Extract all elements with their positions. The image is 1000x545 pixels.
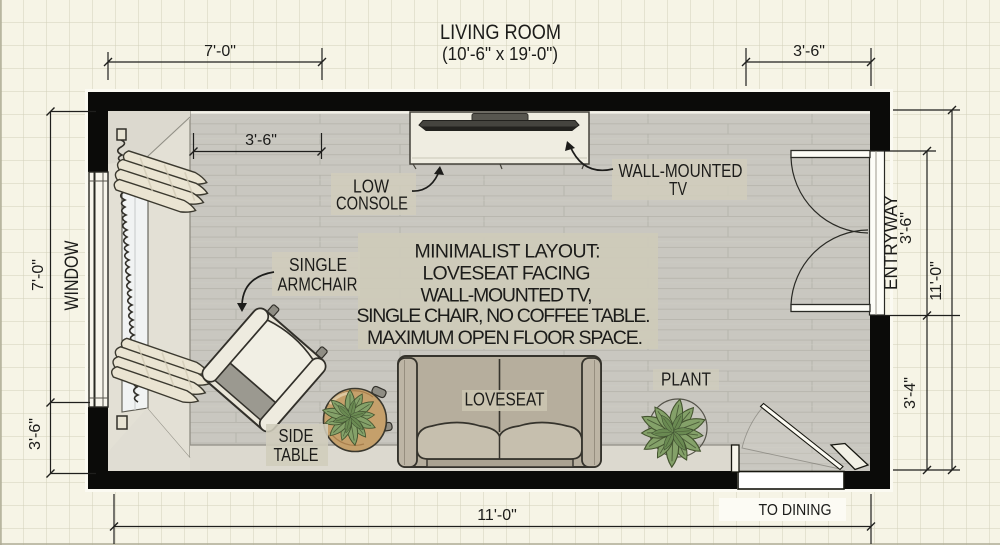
- svg-text:PLANT: PLANT: [661, 369, 711, 390]
- svg-text:TO DINING: TO DINING: [759, 502, 832, 519]
- svg-text:7'-0": 7'-0": [204, 43, 236, 60]
- svg-text:11'-0": 11'-0": [477, 507, 517, 524]
- svg-text:SIDE: SIDE: [279, 425, 314, 446]
- svg-text:(10'-6" x 19'-0"): (10'-6" x 19'-0"): [442, 43, 558, 64]
- svg-text:TV: TV: [669, 178, 688, 199]
- svg-text:WINDOW: WINDOW: [62, 240, 83, 310]
- svg-text:3'-6": 3'-6": [27, 418, 44, 450]
- svg-text:7'-0": 7'-0": [30, 259, 47, 291]
- svg-text:MAXIMUM OPEN FLOOR SPACE.: MAXIMUM OPEN FLOOR SPACE.: [367, 327, 643, 349]
- svg-text:LOVESEAT: LOVESEAT: [465, 389, 545, 410]
- svg-text:TABLE: TABLE: [274, 444, 319, 465]
- svg-text:WALL-MOUNTED TV,: WALL-MOUNTED TV,: [421, 285, 593, 307]
- svg-text:3'-6": 3'-6": [898, 212, 915, 244]
- svg-text:CONSOLE: CONSOLE: [336, 193, 408, 214]
- svg-text:MINIMALIST LAYOUT:: MINIMALIST LAYOUT:: [415, 241, 601, 263]
- svg-text:SINGLE CHAIR, NO COFFEE TABLE.: SINGLE CHAIR, NO COFFEE TABLE.: [357, 305, 651, 327]
- svg-text:3'-4": 3'-4": [902, 377, 919, 409]
- svg-text:3'-6": 3'-6": [793, 43, 825, 60]
- svg-text:ARMCHAIR: ARMCHAIR: [278, 274, 358, 295]
- svg-text:3'-6": 3'-6": [245, 132, 277, 149]
- svg-text:LIVING ROOM: LIVING ROOM: [440, 20, 561, 44]
- svg-text:SINGLE: SINGLE: [289, 254, 347, 275]
- svg-text:LOVESEAT FACING: LOVESEAT FACING: [423, 263, 591, 285]
- svg-text:11'-0": 11'-0": [928, 261, 945, 301]
